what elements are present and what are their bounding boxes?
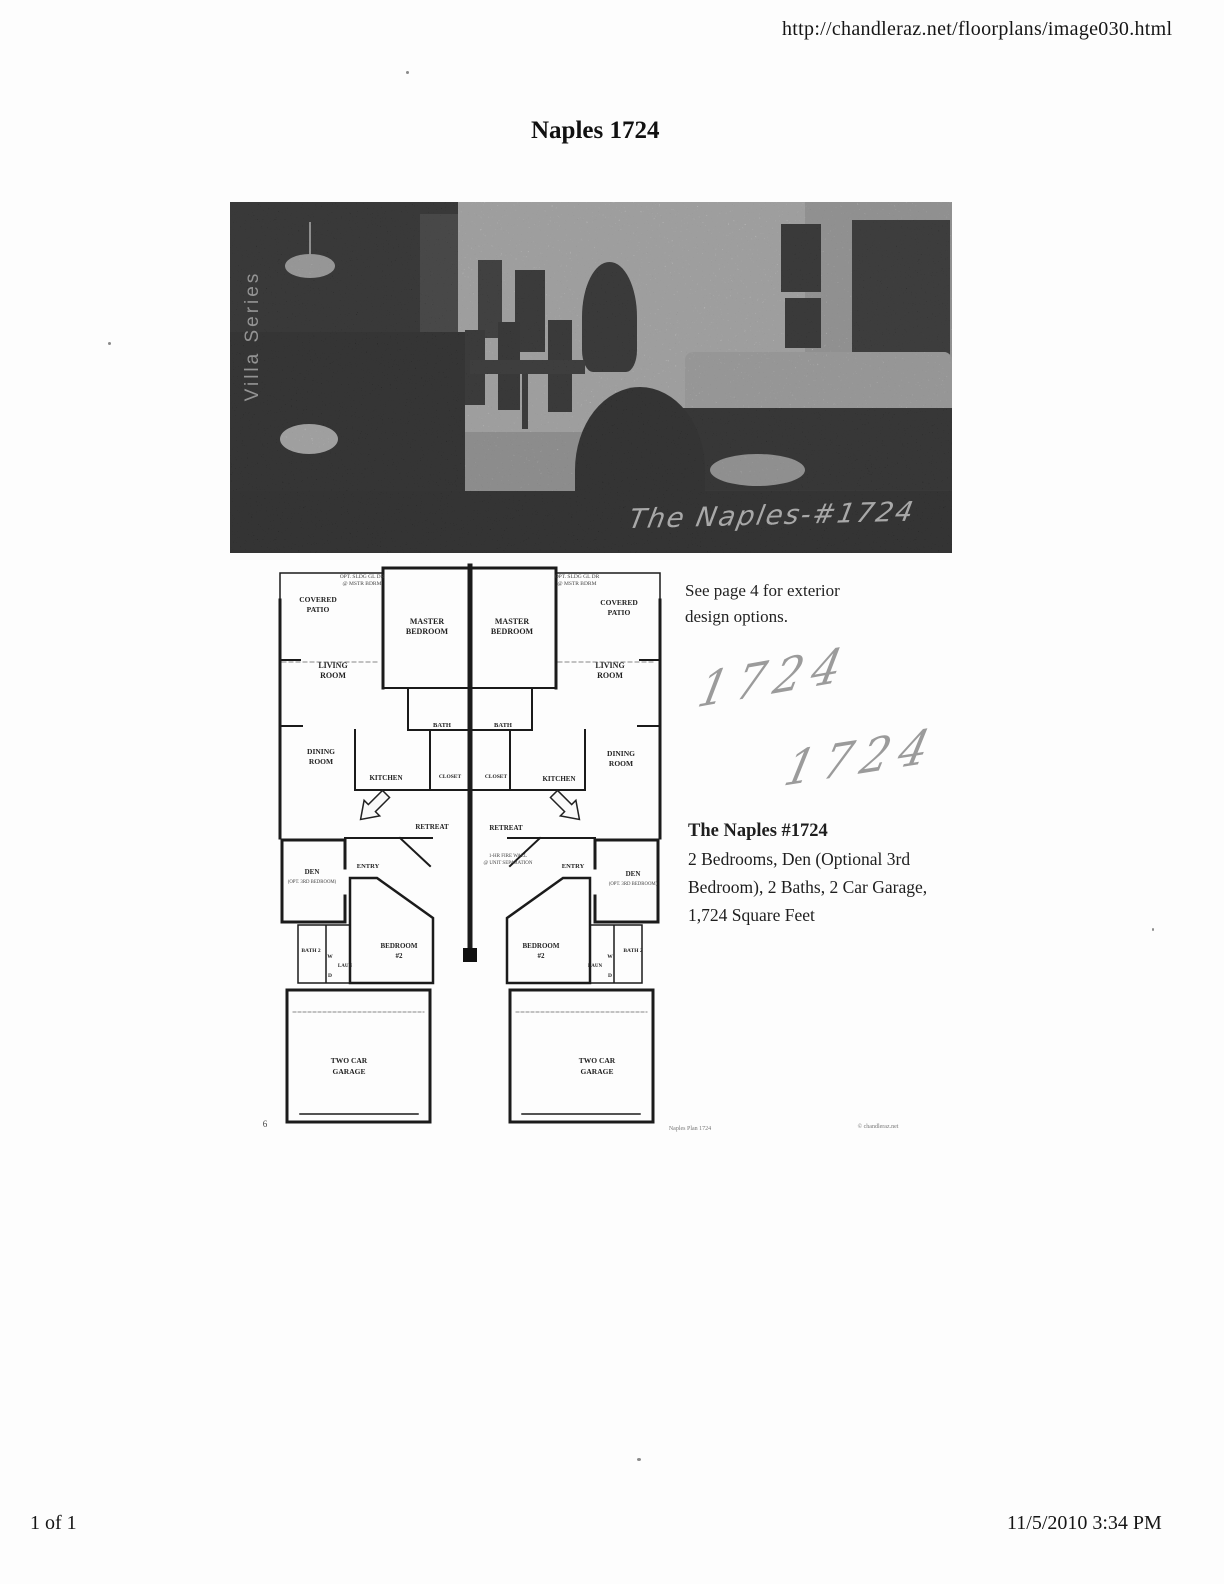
svg-text:ROOM: ROOM xyxy=(609,759,633,768)
label-den-sub: (OPT. 3RD BEDROOM) xyxy=(609,882,658,887)
photo-centerpiece xyxy=(710,454,805,486)
label-retreat: RETREAT xyxy=(489,824,523,832)
label-closet: CLOSET xyxy=(439,774,462,780)
label-dryer: D xyxy=(608,973,612,979)
label-den-sub: (OPT. 3RD BEDROOM) xyxy=(288,880,337,885)
page-indicator: 1 of 1 xyxy=(30,1512,77,1535)
floorplan-walls xyxy=(280,566,660,1122)
photo-floor-lamp xyxy=(280,424,338,454)
svg-text:@ MSTR BDRM: @ MSTR BDRM xyxy=(558,581,597,587)
photo-picture-frame xyxy=(781,224,821,292)
entry-arrow-left xyxy=(353,786,394,827)
label-kitchen: KITCHEN xyxy=(542,775,575,783)
photo-pendant-lamp xyxy=(285,254,335,278)
label-living-room: LIVING xyxy=(595,661,624,670)
photo-dining-table xyxy=(470,360,585,374)
svg-text:@ UNIT SEPARATION: @ UNIT SEPARATION xyxy=(483,861,532,866)
label-dining-room: DINING xyxy=(607,749,635,758)
label-den: DEN xyxy=(305,868,320,876)
exterior-options-note: See page 4 for exterior design options. xyxy=(685,578,945,630)
photo-plant xyxy=(582,262,637,372)
scan-speck xyxy=(637,1458,641,1461)
svg-text:@ MSTR BDRM: @ MSTR BDRM xyxy=(343,581,382,587)
plan-summary-title: The Naples #1724 xyxy=(688,817,968,845)
label-dryer: D xyxy=(328,973,332,979)
label-laundry: LAUN xyxy=(588,964,603,969)
label-dining-room: DINING xyxy=(307,747,335,756)
scan-speck xyxy=(108,342,111,345)
label-closet: CLOSET xyxy=(485,774,508,780)
label-covered-patio: COVERED xyxy=(299,595,337,604)
scan-speck xyxy=(406,71,409,74)
label-den: DEN xyxy=(626,870,641,878)
label-opt-note: OPT. SLDG GL DR xyxy=(555,574,600,580)
label-kitchen: KITCHEN xyxy=(369,774,402,782)
svg-text:GARAGE: GARAGE xyxy=(333,1067,366,1076)
label-washer: W xyxy=(607,954,613,960)
svg-text:GARAGE: GARAGE xyxy=(581,1067,614,1076)
print-timestamp: 11/5/2010 3:34 PM xyxy=(1007,1512,1162,1535)
page-url-header: http://chandleraz.net/floorplans/image03… xyxy=(782,18,1172,41)
svg-text:PATIO: PATIO xyxy=(307,605,330,614)
photo-sofa-base xyxy=(670,408,952,490)
svg-text:BEDROOM: BEDROOM xyxy=(406,627,449,636)
plan-footer-left: Naples Plan 1724 xyxy=(669,1126,711,1132)
svg-text:#2: #2 xyxy=(538,952,546,960)
label-bedroom2: BEDROOM xyxy=(523,942,560,950)
label-center-note: 1-HR FIRE WALL xyxy=(489,854,527,859)
plan-summary: The Naples #1724 2 Bedrooms, Den (Option… xyxy=(688,817,968,929)
label-garage: TWO CAR xyxy=(331,1056,368,1065)
label-laundry: LAUN xyxy=(338,964,353,969)
svg-text:ROOM: ROOM xyxy=(320,671,346,680)
label-entry: ENTRY xyxy=(357,863,380,870)
photo-sofa xyxy=(685,352,952,416)
label-bath: BATH xyxy=(433,722,451,729)
label-retreat: RETREAT xyxy=(415,823,449,831)
svg-text:ROOM: ROOM xyxy=(597,671,623,680)
label-master-bedroom: MASTER xyxy=(495,617,529,626)
label-washer: W xyxy=(327,954,333,960)
label-covered-patio: COVERED xyxy=(600,598,638,607)
label-bath2: BATH 2 xyxy=(301,948,321,954)
photo-picture-frame xyxy=(785,298,821,348)
label-bath: BATH xyxy=(494,722,512,729)
label-opt-note: OPT. SLDG GL DR xyxy=(340,574,385,580)
label-master-bedroom: MASTER xyxy=(410,617,444,626)
label-bedroom2: BEDROOM xyxy=(381,942,418,950)
entry-arrow-right xyxy=(546,786,587,827)
photo-pendant-stem xyxy=(309,222,311,256)
scan-speck xyxy=(1152,928,1154,931)
label-bath2: BATH 2 xyxy=(623,948,643,954)
label-garage: TWO CAR xyxy=(579,1056,616,1065)
photo-dining-table-leg xyxy=(522,374,528,429)
printed-page: http://chandleraz.net/floorplans/image03… xyxy=(0,0,1224,1584)
label-living-room: LIVING xyxy=(318,661,347,670)
svg-text:ROOM: ROOM xyxy=(309,757,333,766)
page-title: Naples 1724 xyxy=(531,117,659,145)
label-entry: ENTRY xyxy=(562,863,585,870)
plan-footer-right: © chandleraz.net xyxy=(858,1123,899,1130)
villa-series-label: Villa Series xyxy=(242,266,266,406)
plan-page-number: 6 xyxy=(263,1119,268,1129)
svg-text:BEDROOM: BEDROOM xyxy=(491,627,534,636)
svg-text:#2: #2 xyxy=(396,952,404,960)
svg-text:PATIO: PATIO xyxy=(608,608,631,617)
interior-photo: Villa Series The Naples-#1724 xyxy=(230,202,952,553)
